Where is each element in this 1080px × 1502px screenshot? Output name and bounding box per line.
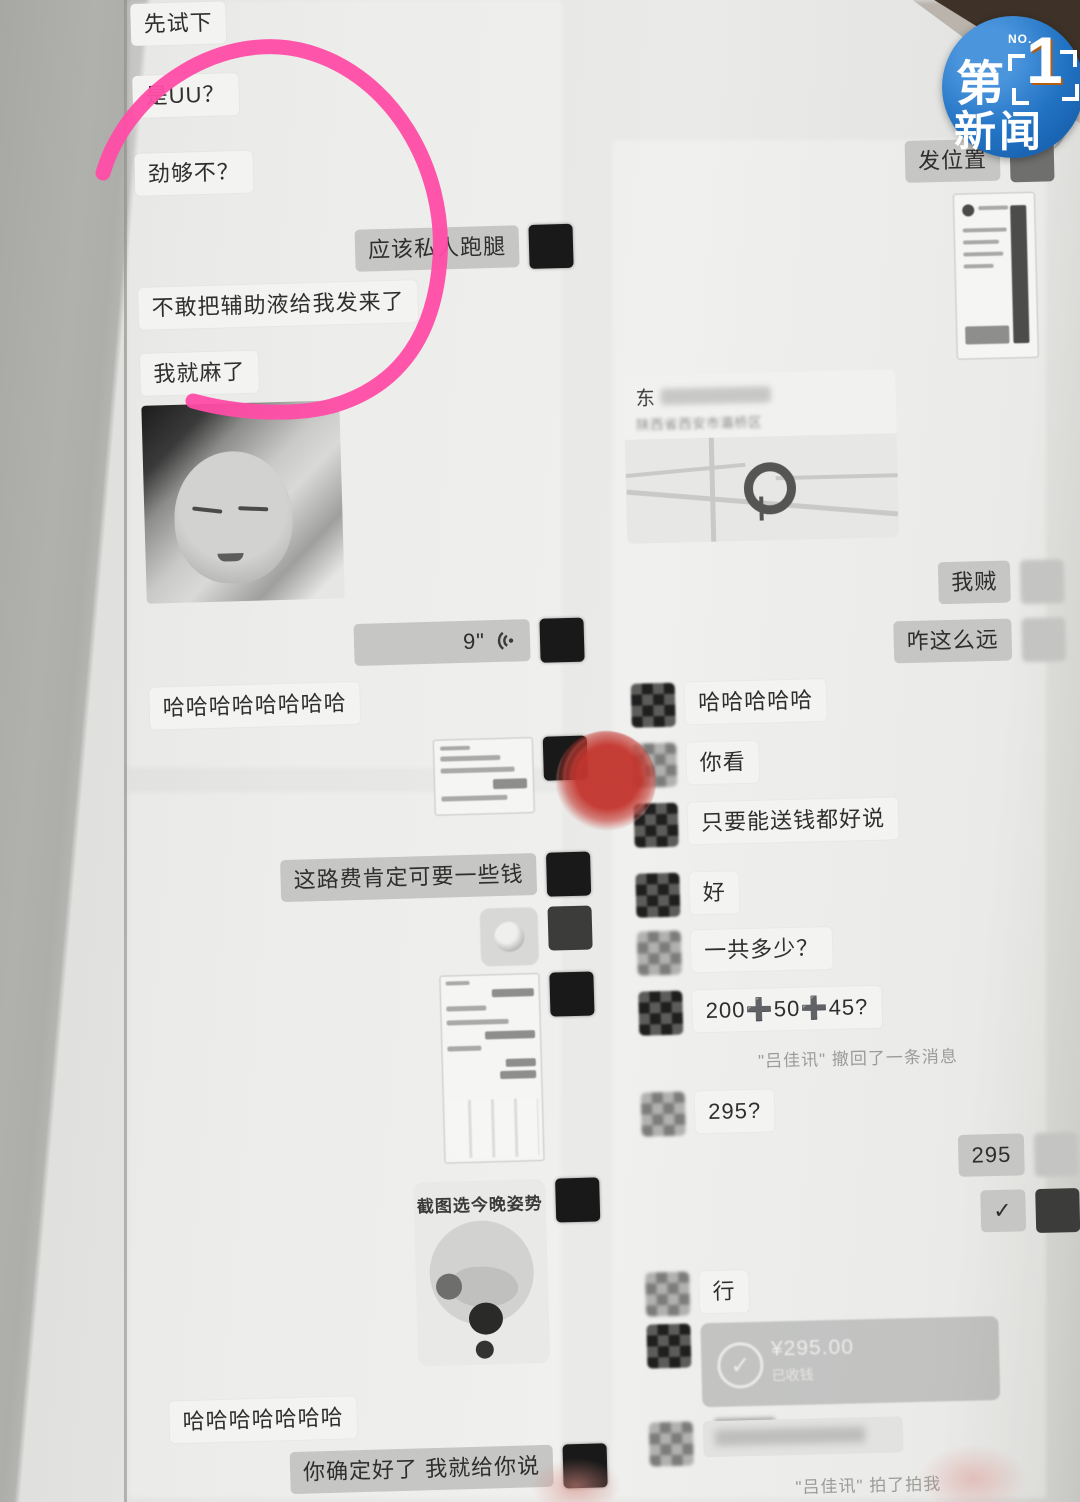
- chat-screenshot-with-keyboard-thumbnail: [439, 973, 544, 1164]
- avatar: [555, 1177, 600, 1222]
- avatar: [635, 873, 680, 918]
- message-row: 哈哈哈哈哈哈哈哈: [149, 676, 586, 730]
- screenshot-dark-strip: [1010, 205, 1029, 343]
- message-row: 一共多少？: [637, 921, 1074, 976]
- message-row: 295?: [641, 1082, 1078, 1137]
- figure-dark-blob: [469, 1302, 504, 1335]
- avatar: [641, 1092, 686, 1137]
- chat-bubble-received: 先试下: [130, 1, 226, 46]
- chat-bubble-received: 哈哈哈哈哈哈哈哈: [149, 682, 360, 730]
- chat-screenshot-thumbnail: [433, 737, 535, 816]
- chat-bubble-received: 好: [689, 871, 739, 914]
- message-row: 劲够不？: [134, 142, 571, 196]
- message-row: 你看: [632, 733, 1069, 788]
- message-row: 截图选今晚姿势: [163, 1177, 604, 1373]
- location-title-text: 东: [635, 383, 655, 410]
- map-pin: [759, 497, 764, 521]
- avatar: [638, 991, 683, 1036]
- message-row: 是UU？: [132, 64, 569, 118]
- chat-bubble-sent: 我贼: [938, 560, 1011, 604]
- pose-sticker: 截图选今晚姿势: [413, 1179, 550, 1367]
- message-row: ✓: [643, 1188, 1080, 1243]
- chat-bubble-received: 我就麻了: [140, 351, 259, 396]
- location-header: 东 陕西省西安市灞桥区: [623, 369, 896, 440]
- message-row: 200➕50➕45?: [638, 981, 1075, 1036]
- chat-bubble-sent: 咋这么远: [893, 618, 1012, 663]
- avatar: [1021, 617, 1066, 662]
- chat-bubble-sent: 你确定好了 我就给你说: [289, 1445, 553, 1494]
- transfer-receipt-card: ✓ ¥295.00 已收钱: [700, 1316, 1000, 1407]
- message-row: 哈哈哈哈哈: [631, 673, 1068, 728]
- chat-bubble-received: 是UU？: [132, 73, 239, 118]
- news-watermark-logo: 第 NO. 1 新闻: [942, 16, 1080, 158]
- mouth-shape: [217, 553, 243, 562]
- chat-bubble-received: 行: [699, 1270, 749, 1313]
- left-chat-column: 先试下 是UU？ 劲够不？ 应该私人跑腿 不敢把辅助液给我发来了 我就麻了: [130, 0, 610, 1502]
- chat-bubble-received: 你看: [686, 741, 759, 785]
- eye-shape: [192, 506, 222, 513]
- logo-bracket: [1060, 50, 1077, 67]
- message-row: 好: [635, 863, 1072, 918]
- avatar: [645, 1272, 690, 1317]
- message-row: [141, 394, 582, 604]
- message-row: 东 陕西省西安市灞桥区: [623, 365, 1063, 544]
- location-title: 东: [635, 378, 884, 411]
- logo-word: 新闻: [954, 98, 1044, 159]
- chat-bubble-sent: 这路费肯定可要一些钱: [280, 853, 537, 902]
- voice-waves-icon: [493, 628, 518, 653]
- voice-message-bubble: 9": [354, 619, 531, 666]
- keyboard-thumbnail: [448, 1098, 540, 1158]
- avatar: [1035, 1188, 1080, 1233]
- chat-bubble-received: 哈哈哈哈哈: [685, 679, 827, 724]
- recall-system-message: "吕佳讯" 撤回了一条消息: [640, 1039, 1076, 1075]
- chat-bubble-sent: 295: [958, 1133, 1025, 1177]
- message-row: 行: [645, 1262, 1080, 1317]
- message-row: 295: [642, 1132, 1079, 1187]
- chat-bubble-received: 一共多少？: [691, 927, 833, 972]
- avatar: [528, 224, 573, 269]
- chat-bubble-received: 295?: [695, 1089, 775, 1133]
- message-row: [151, 736, 589, 824]
- message-row: 应该私人跑腿: [137, 224, 574, 280]
- emoji-sticker: [480, 907, 540, 967]
- profile-avatar-dot: [962, 204, 974, 216]
- chat-bubble-sent: 应该私人跑腿: [354, 225, 519, 272]
- avatar: [547, 905, 592, 950]
- sticker-caption: 截图选今晚姿势: [413, 1189, 546, 1218]
- location-share-card: 东 陕西省西安市灞桥区: [623, 369, 899, 544]
- avatar: [546, 851, 591, 896]
- message-row: 这路费肯定可要一些钱: [154, 851, 591, 907]
- message-row: [156, 905, 593, 975]
- avatar: [1034, 1132, 1079, 1177]
- message-row: 咋这么远: [629, 617, 1066, 672]
- chat-bubble-sent: ✓: [980, 1189, 1026, 1232]
- message-row: 我贼: [628, 559, 1065, 614]
- message-row: 我就麻了: [140, 342, 577, 396]
- baby-photo-message: [141, 400, 344, 603]
- chat-bubble-received: 劲够不？: [134, 151, 253, 196]
- redacted-text: [661, 386, 771, 405]
- logo-bracket: [1008, 54, 1025, 71]
- paper-edge: [124, 0, 127, 1502]
- redacted-phone-number-bubble: [703, 1416, 904, 1457]
- avatar: [649, 1422, 694, 1467]
- profile-screenshot-thumbnail: [953, 192, 1039, 360]
- avatar: [549, 971, 594, 1016]
- logo-bracket: [1062, 84, 1079, 101]
- check-circle-icon: ✓: [717, 1342, 764, 1389]
- eye-shape: [238, 506, 268, 511]
- chat-bubble-received: 哈哈哈哈哈哈哈: [169, 1396, 357, 1443]
- right-chat-column: 发位置 东 陕西省西安市灞桥: [614, 0, 1080, 1502]
- chat-bubble-received: 200➕50➕45?: [692, 986, 882, 1033]
- pink-smudge: [530, 1458, 622, 1502]
- photographed-chat-printout: 先试下 是UU？ 劲够不？ 应该私人跑腿 不敢把辅助液给我发来了 我就麻了: [0, 0, 1080, 1502]
- avatar: [646, 1324, 691, 1369]
- message-row: ✓ ¥295.00 已收钱: [646, 1314, 1080, 1409]
- map-preview: [625, 433, 899, 544]
- chat-bubble-received: 不敢把辅助液给我发来了: [138, 280, 418, 330]
- message-row: [619, 191, 1059, 368]
- message-row: [157, 971, 598, 1171]
- voice-duration: 9": [463, 627, 486, 656]
- red-fingerprint-stamp: [556, 731, 656, 831]
- chat-bubble-received: 只要能送钱都好说: [688, 797, 899, 844]
- figure-dot: [476, 1340, 494, 1358]
- avatar: [631, 683, 676, 728]
- message-row: 不敢把辅助液给我发来了: [138, 276, 575, 330]
- message-row: 只要能送钱都好说: [634, 793, 1071, 848]
- message-row: 哈哈哈哈哈哈哈: [169, 1389, 606, 1443]
- avatar: [539, 618, 584, 663]
- logo-number-one: 1: [1026, 22, 1063, 98]
- location-subtitle: 陕西省西安市灞桥区: [636, 409, 884, 434]
- transfer-amount: ¥295.00: [771, 1336, 854, 1362]
- transfer-status: 已收钱: [771, 1365, 813, 1386]
- baby-face: [173, 450, 295, 585]
- message-row: 先试下: [130, 0, 567, 46]
- message-row: 9": [148, 618, 585, 674]
- avatar: [1020, 559, 1065, 604]
- avatar: [637, 931, 682, 976]
